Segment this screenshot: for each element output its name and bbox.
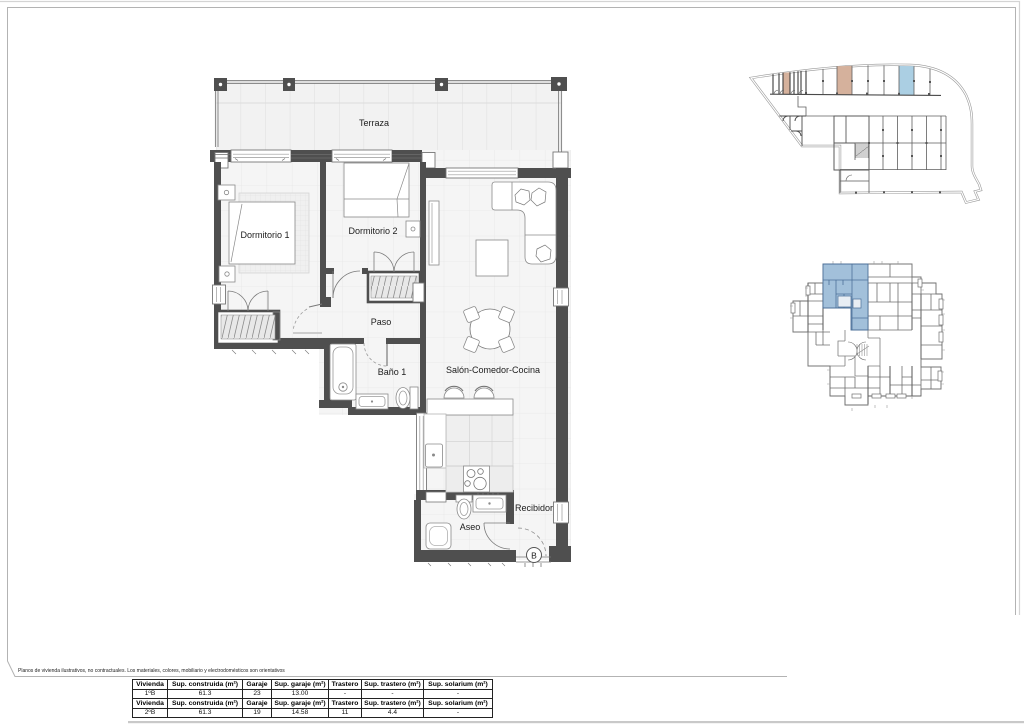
svg-text:Terraza: Terraza bbox=[359, 118, 389, 128]
svg-text:Paso: Paso bbox=[371, 317, 392, 327]
svg-text:Baño 1: Baño 1 bbox=[378, 367, 407, 377]
svg-text:Dormitorio 2: Dormitorio 2 bbox=[348, 226, 397, 236]
svg-text:Dormitorio 1: Dormitorio 1 bbox=[240, 230, 289, 240]
svg-text:B: B bbox=[531, 551, 537, 561]
svg-text:Salón-Comedor-Cocina: Salón-Comedor-Cocina bbox=[446, 365, 540, 375]
svg-text:Aseo: Aseo bbox=[460, 522, 481, 532]
svg-text:Recibidor: Recibidor bbox=[515, 503, 553, 513]
